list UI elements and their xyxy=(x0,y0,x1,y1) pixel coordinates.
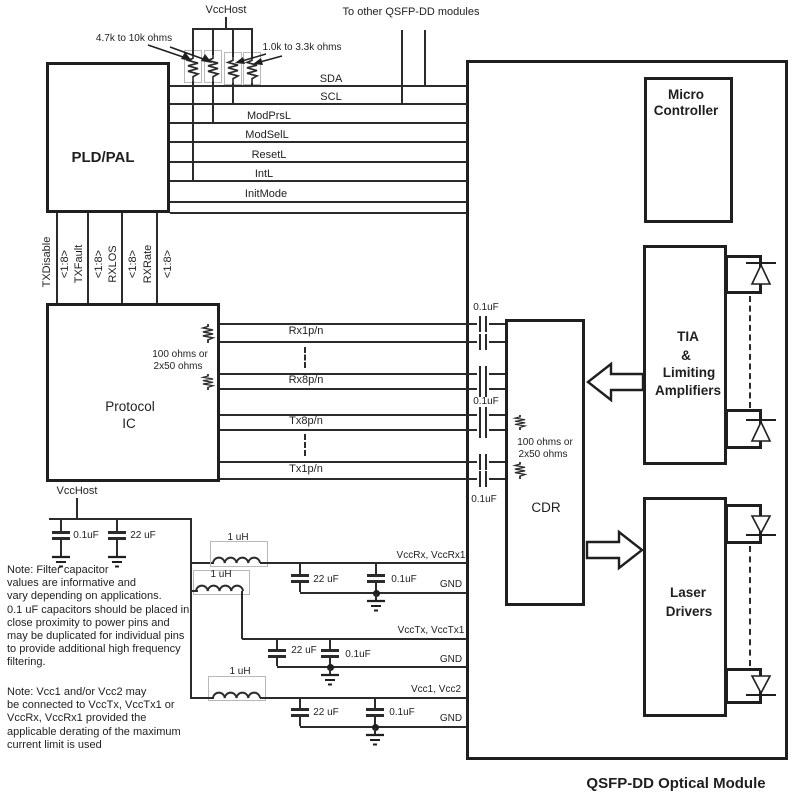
txfault-label: TXFault xyxy=(73,245,85,284)
vccrx-line xyxy=(260,562,467,564)
gnd-line-rx xyxy=(300,592,467,594)
bus-width-label: <1:8> xyxy=(127,250,139,278)
vcc12-line xyxy=(260,697,467,699)
laser-label-2: Drivers xyxy=(666,605,713,619)
pullup-large-label: 1.0k to 3.3k ohms xyxy=(263,43,342,54)
spare-line xyxy=(170,212,467,214)
rx8-label: Rx8p/n xyxy=(289,375,324,387)
ground-icon xyxy=(367,600,385,612)
capacitor-icon xyxy=(477,316,489,332)
micro-label-1: Micro xyxy=(668,88,704,102)
wire xyxy=(374,699,376,708)
bus-continuation-dashes xyxy=(304,347,306,368)
tx1-label: Tx1p/n xyxy=(289,464,323,476)
wire xyxy=(299,716,301,726)
capacitor-icon xyxy=(477,407,489,423)
bus-width-label: <1:8> xyxy=(162,250,174,278)
initmode-line xyxy=(170,201,467,203)
wire xyxy=(60,520,62,531)
intl-label: IntL xyxy=(255,169,273,181)
sda-line xyxy=(170,85,467,87)
bus-continuation-dashes xyxy=(304,434,306,456)
coupling-cap-label: 0.1uF xyxy=(473,397,499,408)
note-line: values are informative and xyxy=(7,577,207,590)
tia-label-3: Limiting xyxy=(663,366,716,380)
tx8n-line xyxy=(220,429,505,431)
coupling-cap-label: 0.1uF xyxy=(473,303,499,314)
scl-label: SCL xyxy=(320,92,341,104)
ground-icon xyxy=(366,734,384,746)
capacitor-icon xyxy=(477,334,489,350)
qsfp-dd-schematic: QSFP-DD Optical Module VccHost 4.7k to 1… xyxy=(0,0,800,800)
vcchost-top-label: VccHost xyxy=(206,5,247,17)
photodiode-icon xyxy=(744,260,778,286)
capacitor-icon xyxy=(477,454,489,470)
resistor-icon xyxy=(202,324,214,343)
gnd-label: GND xyxy=(440,714,462,725)
sda-label: SDA xyxy=(320,74,343,86)
vccrx-label: VccRx, VccRx1 xyxy=(397,551,466,562)
note-line: VccRx, VccRx1 provided the xyxy=(7,712,207,725)
wire xyxy=(299,564,301,574)
tia-label-4: Amplifiers xyxy=(655,384,721,398)
rx1p-line xyxy=(220,323,505,325)
txdisable-label: TXDisable xyxy=(41,237,53,288)
annotation-arrow-icon xyxy=(248,54,284,68)
resistor-icon xyxy=(514,462,526,479)
rxrate-bus xyxy=(156,213,158,303)
block-arrow-left-icon xyxy=(586,362,644,402)
channel-dashes xyxy=(749,546,751,666)
resetl-label: ResetL xyxy=(252,150,287,162)
to-other-modules-label: To other QSFP-DD modules xyxy=(343,7,480,19)
wire xyxy=(424,30,426,86)
note-line: Note: Filter capacitor xyxy=(7,564,207,577)
capacitor-icon xyxy=(477,471,489,487)
inductor-icon xyxy=(213,550,260,564)
gnd-label: GND xyxy=(440,655,462,666)
note-line: may be duplicated for individual pins xyxy=(7,630,207,643)
gnd-line-vcc12 xyxy=(300,726,467,728)
wire xyxy=(116,520,118,531)
cap-label: 22 uF xyxy=(130,531,156,542)
vcctx-label: VccTx, VccTx1 xyxy=(398,626,465,637)
termination-label-right-2: 2x50 ohms xyxy=(519,450,568,461)
txdisable-bus xyxy=(56,213,58,303)
protocol-ic-block xyxy=(46,303,220,482)
cdr-label: CDR xyxy=(531,501,560,515)
modsell-label: ModSelL xyxy=(245,130,288,142)
capacitor-icon xyxy=(477,366,489,382)
note-line: close proximity to power pins and xyxy=(7,617,207,630)
note-line: be connected to VccTx, VccTx1 or xyxy=(7,699,207,712)
note-line: to provide additional high frequency xyxy=(7,643,207,656)
rx1n-line xyxy=(220,341,505,343)
note-line: 0.1 uF capacitors should be placed in xyxy=(7,604,207,617)
initmode-label: InitMode xyxy=(245,189,287,201)
module-title: QSFP-DD Optical Module xyxy=(586,776,765,792)
capacitor-plate xyxy=(108,531,126,534)
cap-label: 22 uF xyxy=(291,646,317,657)
vcchost-rail xyxy=(49,518,192,520)
wire xyxy=(212,81,214,123)
laser-diode-icon xyxy=(744,674,778,698)
capacitor-plate xyxy=(268,649,286,652)
laser-label-1: Laser xyxy=(670,586,706,600)
block-arrow-right-icon xyxy=(586,530,644,570)
inductor-label: 1 uH xyxy=(227,533,248,544)
bus-width-label: <1:8> xyxy=(59,250,71,278)
wire xyxy=(401,30,403,104)
resetl-line xyxy=(170,161,467,163)
rx8p-line xyxy=(220,373,505,375)
annotation-arrow-icon xyxy=(168,44,218,66)
wire xyxy=(192,81,194,181)
cap-label: 0.1uF xyxy=(345,650,371,661)
capacitor-plate xyxy=(291,708,309,711)
tx1p-line xyxy=(220,461,505,463)
cap-label: 22 uF xyxy=(313,575,339,586)
wire xyxy=(329,640,331,649)
coupling-cap-label: 0.1uF xyxy=(471,495,497,506)
pullup-rail xyxy=(193,28,253,30)
wire xyxy=(299,582,301,592)
rxlos-label: RXLOS xyxy=(107,245,119,282)
inductor-icon xyxy=(213,685,260,699)
resistor-icon xyxy=(514,415,526,430)
wire xyxy=(60,539,62,556)
tx1n-line xyxy=(220,478,505,480)
cap-label: 0.1uF xyxy=(389,708,415,719)
termination-label-left-1: 100 ohms or xyxy=(152,350,208,361)
wire xyxy=(76,498,78,519)
note-line: filtering. xyxy=(7,656,207,669)
rx8n-line xyxy=(220,388,505,390)
capacitor-icon xyxy=(477,381,489,397)
photodiode-icon xyxy=(744,417,778,443)
laser-diode-icon xyxy=(744,514,778,538)
capacitor-plate xyxy=(321,649,339,652)
note-vcc-connection: Note: Vcc1 and/or Vcc2 may be connected … xyxy=(7,686,207,752)
cap-label: 22 uF xyxy=(313,708,339,719)
scl-line xyxy=(170,103,467,105)
inductor-label: 1 uH xyxy=(229,667,250,678)
capacitor-icon xyxy=(477,422,489,438)
gnd-line-tx xyxy=(277,666,467,668)
tia-label-2: & xyxy=(681,349,691,363)
protocol-ic-label-1: Protocol xyxy=(105,400,155,414)
channel-dashes xyxy=(749,296,751,408)
txfault-bus xyxy=(87,213,89,303)
cap-label: 0.1uF xyxy=(391,575,417,586)
modsell-line xyxy=(170,141,467,143)
wire xyxy=(116,539,118,556)
rx1-label: Rx1p/n xyxy=(289,326,324,338)
vcchost-power-label: VccHost xyxy=(57,486,98,498)
micro-label-2: Controller xyxy=(654,104,719,118)
wire xyxy=(276,657,278,666)
bus-width-label: <1:8> xyxy=(93,250,105,278)
protocol-ic-label-2: IC xyxy=(122,417,136,431)
tx8p-line xyxy=(220,414,505,416)
pld-pal-label: PLD/PAL xyxy=(71,150,134,166)
wire xyxy=(276,640,278,649)
capacitor-plate xyxy=(52,531,70,534)
termination-label-right-1: 100 ohms or xyxy=(517,438,573,449)
note-line: vary depending on applications. xyxy=(7,590,207,603)
note-line: current limit is used xyxy=(7,739,207,752)
capacitor-plate xyxy=(367,574,385,577)
gnd-label: GND xyxy=(440,580,462,591)
tia-label-1: TIA xyxy=(677,330,699,344)
note-filter-capacitors: Note: Filter capacitor values are inform… xyxy=(7,564,207,670)
capacitor-plate xyxy=(366,708,384,711)
wire xyxy=(241,591,243,639)
modprsl-line xyxy=(170,122,467,124)
intl-line xyxy=(170,180,467,182)
note-line: applicable derating of the maximum xyxy=(7,726,207,739)
note-line: Note: Vcc1 and/or Vcc2 may xyxy=(7,686,207,699)
ground-icon xyxy=(321,674,339,686)
wire xyxy=(299,699,301,708)
modprsl-label: ModPrsL xyxy=(247,111,291,123)
rxrate-label: RXRate xyxy=(142,245,154,284)
capacitor-plate xyxy=(291,574,309,577)
vcc12-label: Vcc1, Vcc2 xyxy=(411,685,461,696)
cap-label: 0.1uF xyxy=(73,531,99,542)
pld-pal-block xyxy=(46,62,170,213)
wire xyxy=(375,564,377,574)
tx8-label: Tx8p/n xyxy=(289,416,323,428)
resistor-icon xyxy=(202,374,214,390)
termination-label-left-2: 2x50 ohms xyxy=(154,362,203,373)
rxlos-bus xyxy=(121,213,123,303)
